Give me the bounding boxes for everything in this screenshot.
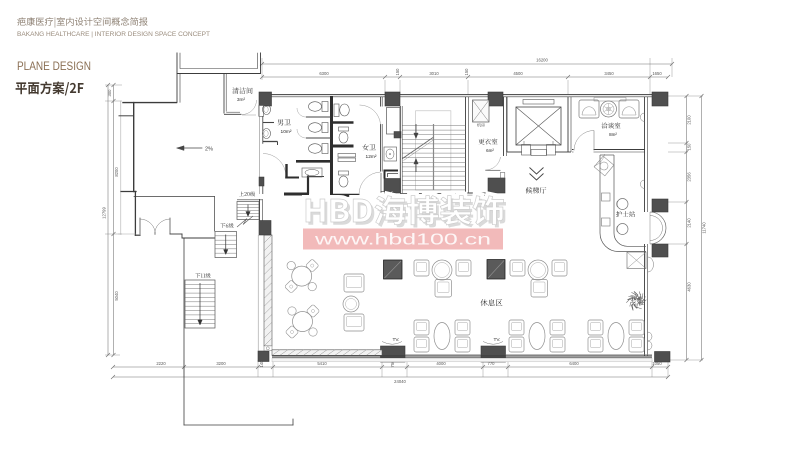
svg-text:1650: 1650 <box>652 71 662 76</box>
svg-text:150: 150 <box>395 68 400 76</box>
svg-text:TV.: TV. <box>392 337 399 343</box>
svg-text:10m²: 10m² <box>281 129 292 135</box>
svg-text:3010: 3010 <box>429 71 439 76</box>
svg-text:8m²: 8m² <box>609 132 617 137</box>
svg-text:3200: 3200 <box>216 361 226 366</box>
svg-text:PLANE DESIGN: PLANE DESIGN <box>17 61 91 73</box>
svg-text:3450: 3450 <box>604 71 614 76</box>
svg-text:150: 150 <box>687 143 692 151</box>
svg-text:8200: 8200 <box>114 167 119 177</box>
svg-text:16200: 16200 <box>536 58 548 63</box>
svg-text:2100: 2100 <box>687 115 692 125</box>
svg-text:4630: 4630 <box>687 282 692 292</box>
svg-text:2220: 2220 <box>156 361 166 366</box>
svg-text:24040: 24040 <box>394 379 406 384</box>
svg-text:www.hbd100.cn: www.hbd100.cn <box>313 232 491 249</box>
svg-text:4500: 4500 <box>513 71 523 76</box>
svg-text:12799: 12799 <box>102 207 107 219</box>
svg-text:5040: 5040 <box>114 291 119 301</box>
svg-text:6300: 6300 <box>319 71 329 76</box>
svg-text:11740: 11740 <box>702 222 707 234</box>
svg-text:TV.: TV. <box>493 337 500 343</box>
svg-text:6m²: 6m² <box>486 148 494 153</box>
svg-text:BAKANG HEALTHCARE | INTERIOR D: BAKANG HEALTHCARE | INTERIOR DESIGN SPAC… <box>17 31 210 38</box>
svg-text:2%: 2% <box>205 147 213 153</box>
svg-text:12m²: 12m² <box>366 154 377 160</box>
svg-text:2356: 2356 <box>687 172 692 182</box>
svg-text:150: 150 <box>464 68 469 76</box>
svg-text:3m²: 3m² <box>237 97 246 103</box>
svg-text:2140: 2140 <box>687 218 692 228</box>
